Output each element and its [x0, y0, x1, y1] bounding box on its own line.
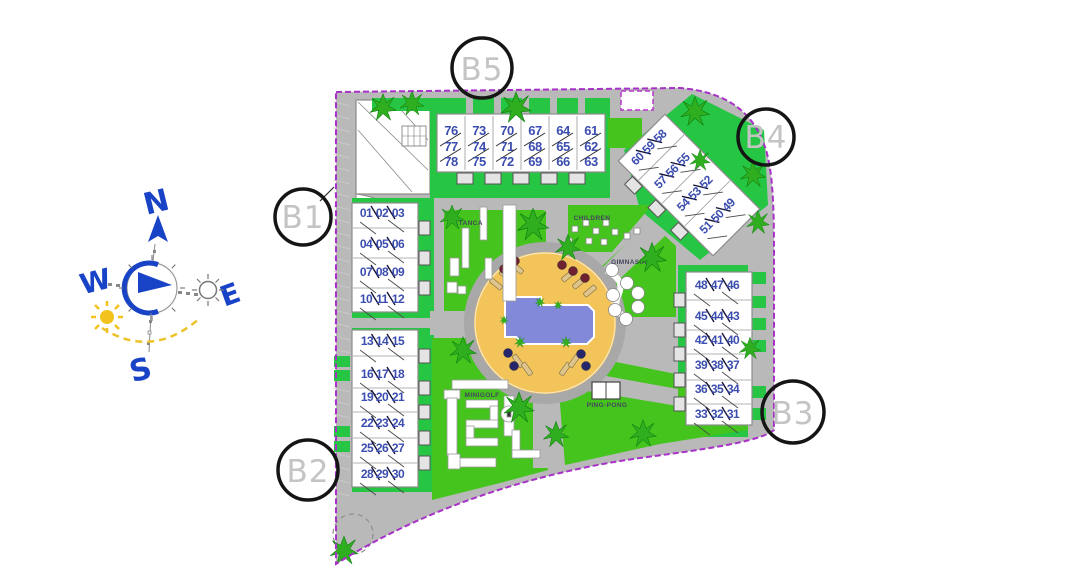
b2-terraces: 131415161718192021222324252627282930	[352, 330, 430, 495]
gym-equipment-pad	[632, 301, 645, 314]
balcony	[419, 251, 430, 265]
parasol-icon	[582, 362, 591, 371]
compass-tick-square	[108, 283, 112, 286]
minigolf-track	[512, 450, 540, 458]
balcony	[674, 347, 685, 361]
balcony	[674, 397, 685, 411]
play-equipment	[593, 228, 599, 234]
utility-pad	[621, 91, 653, 110]
minigolf-track	[448, 454, 460, 469]
unit-07[interactable]: 07	[360, 265, 373, 279]
unit-63[interactable]: 63	[584, 154, 598, 169]
unit-27[interactable]: 27	[392, 441, 405, 455]
children-label: CHILDREN	[574, 215, 611, 222]
balcony	[674, 373, 685, 387]
unit-36[interactable]: 36	[695, 382, 708, 396]
unit-09[interactable]: 09	[392, 265, 405, 279]
compass-west-label: W	[76, 262, 114, 302]
unit-02[interactable]: 02	[376, 206, 389, 220]
sunset-sun-icon	[91, 301, 123, 333]
balcony	[419, 431, 430, 445]
compass-tick-square	[178, 291, 182, 294]
building-body	[352, 330, 418, 487]
b1-terraces: 010203040506070809101112	[352, 203, 430, 320]
compass-east-label: E	[216, 276, 245, 314]
parasol-icon	[558, 261, 567, 270]
balcony	[419, 281, 430, 295]
balcony	[485, 173, 501, 184]
pingpong-label: PING-PONG	[587, 402, 628, 409]
marker-label-b5: B5	[461, 52, 504, 88]
unit-26[interactable]: 26	[376, 441, 389, 455]
minigolf-track	[466, 438, 498, 446]
unit-03[interactable]: 03	[392, 206, 405, 220]
marker-label-b4: B4	[745, 120, 788, 156]
block-marker-b3[interactable]: B3	[762, 381, 824, 443]
unit-10[interactable]: 10	[360, 292, 373, 306]
petanca-lane	[462, 228, 469, 268]
parasol-icon	[510, 362, 519, 371]
unit-20[interactable]: 20	[376, 390, 389, 404]
gym-equipment-pad	[632, 287, 645, 300]
unit-66[interactable]: 66	[556, 154, 570, 169]
unit-35[interactable]: 35	[711, 382, 724, 396]
parasol-icon	[569, 267, 578, 276]
play-equipment	[586, 238, 592, 244]
play-equipment	[612, 229, 618, 235]
unit-69[interactable]: 69	[528, 154, 542, 169]
parasol-icon	[581, 274, 590, 283]
swimming-pool	[505, 297, 594, 344]
balcony	[513, 173, 529, 184]
unit-29[interactable]: 29	[376, 467, 389, 481]
unit-18[interactable]: 18	[392, 367, 405, 381]
unit-74[interactable]: 74	[472, 139, 487, 154]
unit-39[interactable]: 39	[695, 358, 708, 372]
sun-disc	[100, 310, 114, 324]
block-marker-b2[interactable]: B2	[278, 440, 338, 500]
unit-78[interactable]: 78	[444, 154, 458, 169]
compass-south-label: S	[126, 351, 155, 390]
compass-tick-square	[194, 293, 198, 296]
balcony	[419, 221, 430, 235]
unit-75[interactable]: 75	[472, 154, 486, 169]
unit-43[interactable]: 43	[727, 309, 740, 323]
unit-12[interactable]: 12	[392, 292, 405, 306]
unit-38[interactable]: 38	[711, 358, 724, 372]
compass-tick	[172, 308, 176, 312]
balcony	[569, 173, 585, 184]
unit-42[interactable]: 42	[695, 333, 708, 347]
unit-34[interactable]: 34	[727, 382, 740, 396]
compass-tick-square	[148, 331, 151, 334]
unit-33[interactable]: 33	[695, 407, 708, 421]
unit-44[interactable]: 44	[711, 309, 724, 323]
play-equipment	[601, 239, 607, 245]
unit-48[interactable]: 48	[695, 278, 708, 292]
petanca-lane	[485, 258, 492, 279]
sunrise-sun-icon	[192, 274, 224, 306]
marker-label-b3: B3	[772, 396, 815, 432]
minigolf-label: MINIGOLF	[465, 392, 500, 399]
unit-17[interactable]: 17	[376, 367, 389, 381]
unit-15[interactable]: 15	[392, 334, 405, 348]
balcony	[419, 349, 430, 363]
compass-tick-square	[153, 250, 156, 253]
parking-slot	[578, 96, 585, 116]
unit-45[interactable]: 45	[695, 309, 708, 323]
unit-41[interactable]: 41	[711, 333, 724, 347]
b3-terraces: 484746454443424140393837363534333231	[674, 272, 752, 435]
block-marker-b5[interactable]: B5	[452, 38, 512, 98]
marker-label-b1: B1	[282, 200, 325, 236]
sun-disc	[200, 282, 217, 299]
petanca-lane	[450, 258, 459, 276]
b5-terraces: 767370676461777471686562787572696663	[437, 114, 605, 184]
unit-01[interactable]: 01	[360, 206, 373, 220]
unit-30[interactable]: 30	[392, 467, 405, 481]
play-equipment	[634, 228, 640, 234]
balcony	[419, 381, 430, 395]
compass-tick	[129, 308, 133, 312]
gym-equipment-pad	[609, 304, 622, 317]
gym-equipment-pad	[607, 289, 620, 302]
unit-24[interactable]: 24	[392, 416, 405, 430]
parking-slot	[494, 96, 501, 116]
compass-tick-square	[116, 284, 120, 287]
compass-tick	[129, 265, 133, 269]
play-equipment	[624, 233, 630, 239]
balcony	[674, 323, 685, 337]
gym-equipment-pad	[621, 277, 634, 290]
pingpong-area	[592, 382, 620, 399]
unit-11[interactable]: 11	[376, 292, 389, 306]
petanca-bench	[447, 282, 457, 293]
gym-equipment-pad	[620, 313, 633, 326]
unit-32[interactable]: 32	[711, 407, 724, 421]
parasol-icon	[577, 350, 586, 359]
site-plan-canvas: PETANCA CHILDREN GIMNASIA MINIGOLF PING-…	[0, 0, 1080, 572]
unit-23[interactable]: 23	[376, 416, 389, 430]
parking-slot	[550, 96, 557, 116]
petanca-lane	[503, 205, 516, 301]
parasol-icon	[504, 349, 513, 358]
minigolf-track	[447, 398, 457, 456]
unit-21[interactable]: 21	[392, 390, 405, 404]
marker-label-b2: B2	[287, 454, 330, 490]
compass-north-label: N	[140, 183, 173, 223]
compass-rose: N W E S	[76, 183, 244, 391]
unit-72[interactable]: 72	[500, 154, 514, 169]
petanca-bench	[458, 286, 466, 294]
unit-04[interactable]: 04	[360, 237, 373, 251]
compass-tick	[172, 265, 176, 269]
balcony	[419, 405, 430, 419]
parking-slot	[466, 96, 473, 116]
compass-tick-square	[186, 292, 190, 295]
balcony	[419, 456, 430, 470]
unit-47[interactable]: 47	[711, 278, 724, 292]
minigolf-track	[452, 380, 508, 389]
unit-46[interactable]: 46	[727, 278, 740, 292]
unit-37[interactable]: 37	[727, 358, 740, 372]
balcony	[541, 173, 557, 184]
compass-tick-square	[149, 320, 152, 323]
balcony	[674, 293, 685, 307]
unit-06[interactable]: 06	[392, 237, 405, 251]
balcony	[457, 173, 473, 184]
unit-40[interactable]: 40	[727, 333, 740, 347]
unit-08[interactable]: 08	[376, 265, 389, 279]
unit-31[interactable]: 31	[727, 407, 740, 421]
unit-05[interactable]: 05	[376, 237, 389, 251]
play-equipment	[572, 226, 578, 232]
unit-14[interactable]: 14	[376, 334, 389, 348]
block-marker-b1[interactable]: B1	[275, 187, 334, 245]
